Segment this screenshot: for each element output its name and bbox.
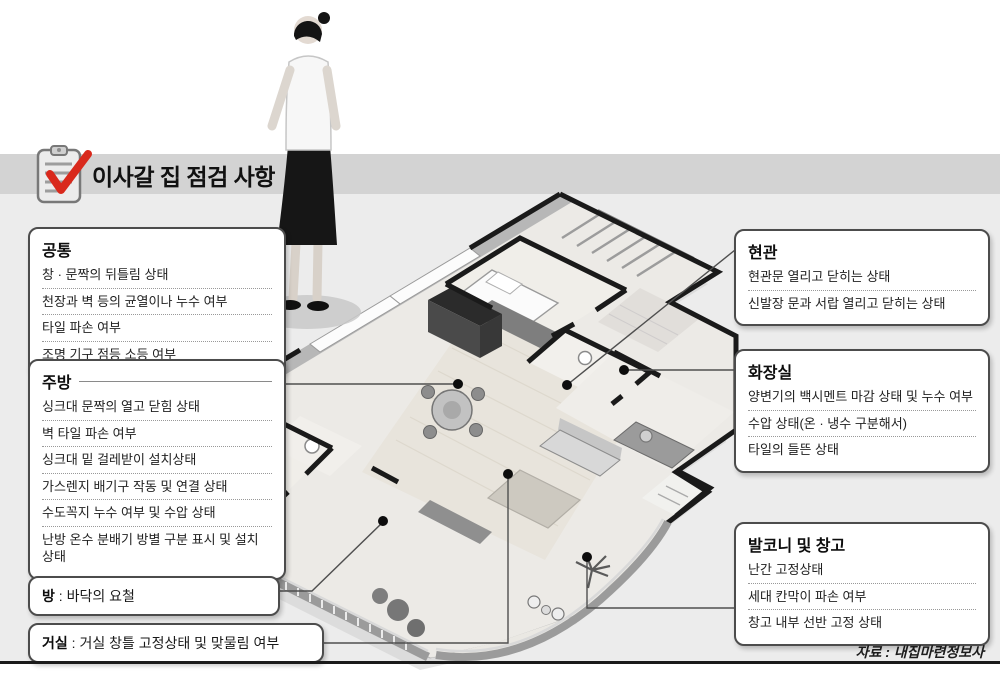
checklist-item: 양변기의 백시멘트 마감 상태 및 누수 여부 [748,384,976,410]
checklist-entrance: 현관문 열리고 닫히는 상태신발장 문과 서랍 열리고 닫히는 상태 [748,264,976,316]
balcony-chair [552,608,564,620]
separator: : [68,635,80,651]
checklist-bathroom: 양변기의 백시멘트 마감 상태 및 누수 여부수압 상태(온 · 냉수 구분해서… [748,384,976,463]
checklist-item: 난간 고정상태 [748,557,976,583]
checklist-item: 신발장 문과 서랍 열리고 닫히는 상태 [748,290,976,317]
checklist-kitchen: 싱크대 문짝의 열고 닫힘 상태벽 타일 파손 여부싱크대 밑 걸레받이 설치상… [42,394,272,570]
box-title-entrance: 현관 [748,237,976,264]
dot-bathroom [619,365,629,375]
dot-balcony [582,552,592,562]
checklist-item: 현관문 열리고 닫히는 상태 [748,264,976,290]
checklist-box-balcony: 발코니 및 창고 난간 고정상태세대 칸막이 파손 여부창고 내부 선반 고정 … [734,522,990,646]
dot-entrance [562,380,572,390]
checklist-box-living: 거실 : 거실 창틀 고정상태 및 맞물림 여부 [28,623,324,663]
checklist-item: 세대 칸막이 파손 여부 [748,583,976,610]
checklist-box-entrance: 현관 현관문 열리고 닫히는 상태신발장 문과 서랍 열리고 닫히는 상태 [734,229,990,326]
room-note: 바닥의 요철 [67,588,135,604]
checklist-box-kitchen: 주방 싱크대 문짝의 열고 닫힘 상태벽 타일 파손 여부싱크대 밑 걸레받이 … [28,359,286,580]
dot-room [378,516,388,526]
checklist-item: 창고 내부 선반 고정 상태 [748,609,976,636]
balcony-table [542,606,551,615]
box-title-kitchen: 주방 [42,367,272,394]
desk-chair [640,430,652,442]
checklist-item: 난방 온수 분배기 방별 구분 표시 및 설치 상태 [42,526,272,570]
checklist-item: 수압 상태(온 · 냉수 구분해서) [748,410,976,437]
checklist-common: 창 · 문짝의 뒤틀림 상태천장과 벽 등의 균열이나 누수 여부타일 파손 여… [42,262,272,367]
checklist-item: 타일의 들뜬 상태 [748,436,976,463]
toilet [579,352,592,365]
skirt [277,146,337,245]
plant [387,599,409,621]
checklist-box-room: 방 : 바닥의 요철 [28,576,280,616]
source-credit: 자료 : 내집마련정보사 [856,642,984,662]
dot-kitchen [453,379,463,389]
checklist-balcony: 난간 고정상태세대 칸막이 파손 여부창고 내부 선반 고정 상태 [748,557,976,636]
bottom-border [0,661,1000,664]
box-title-common: 공통 [42,235,272,262]
box-title-room: 방 [42,588,55,604]
checklist-item: 싱크대 문짝의 열고 닫힘 상태 [42,394,272,420]
checklist-box-bathroom: 화장실 양변기의 백시멘트 마감 상태 및 누수 여부수압 상태(온 · 냉수 … [734,349,990,473]
plant [372,588,388,604]
checklist-item: 타일 파손 여부 [42,314,272,341]
box-title-living: 거실 [42,635,68,651]
checklist-item: 창 · 문짝의 뒤틀림 상태 [42,262,272,288]
balcony-chair [528,596,540,608]
checklist-item: 수도꼭지 누수 여부 및 수압 상태 [42,499,272,526]
box-title-bathroom: 화장실 [748,357,976,384]
dot-living [503,469,513,479]
checklist-item: 싱크대 밑 걸레받이 설치상태 [42,446,272,473]
living-note: 거실 창틀 고정상태 및 맞물림 여부 [79,635,279,651]
checklist-item: 천장과 벽 등의 균열이나 누수 여부 [42,288,272,315]
checklist-box-common: 공통 창 · 문짝의 뒤틀림 상태천장과 벽 등의 균열이나 누수 여부타일 파… [28,227,286,377]
separator: : [55,588,67,604]
infographic-canvas: 이사갈 집 점검 사항 [0,0,1000,678]
plant [407,619,425,637]
checklist-item: 가스렌지 배기구 작동 및 연결 상태 [42,473,272,500]
checklist-item: 벽 타일 파손 여부 [42,420,272,447]
box-title-balcony: 발코니 및 창고 [748,530,976,557]
